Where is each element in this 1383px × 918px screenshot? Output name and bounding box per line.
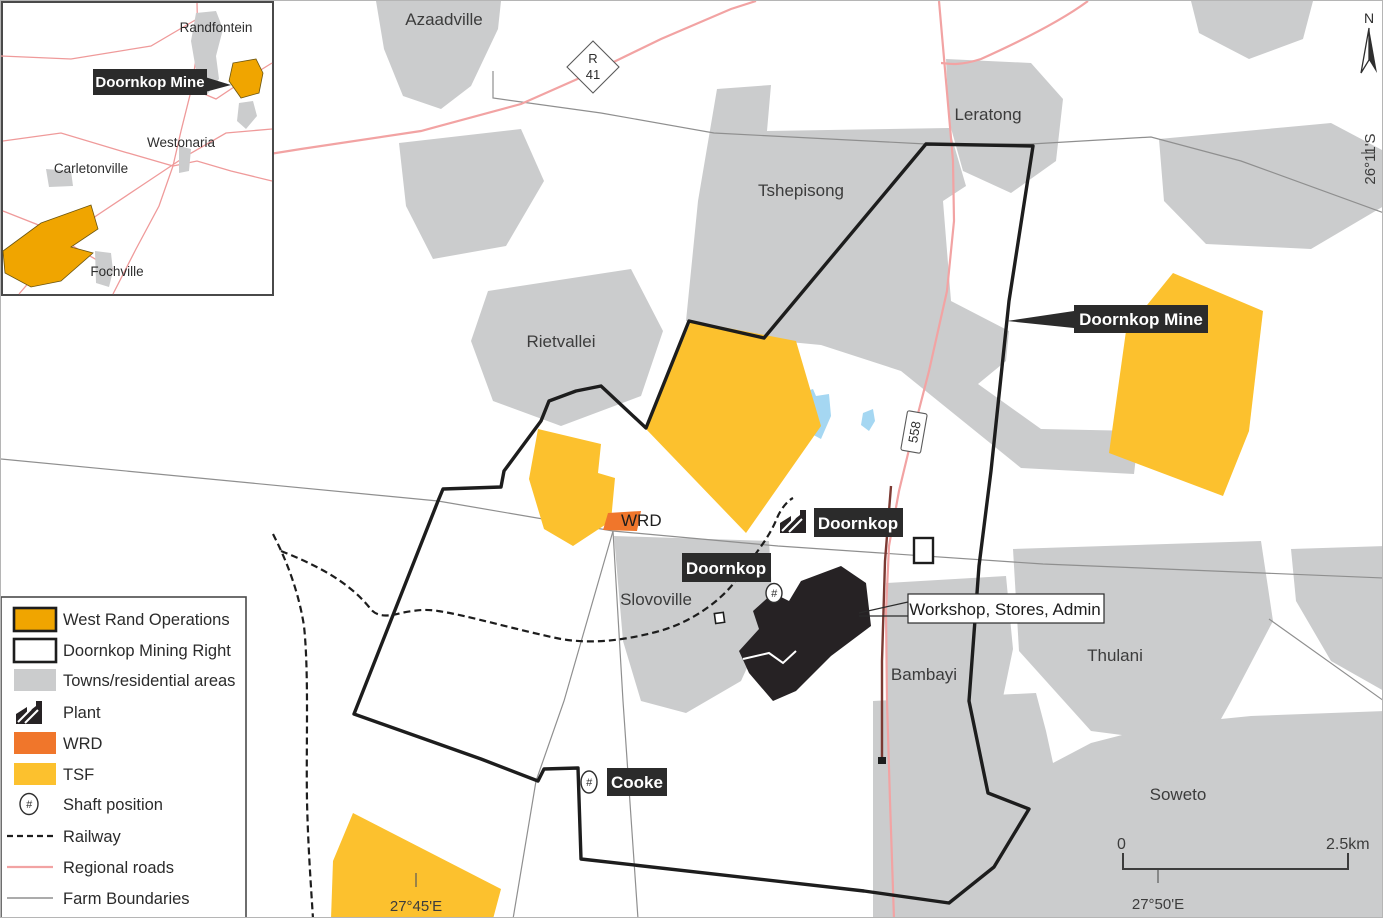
scale-start: 0: [1117, 836, 1126, 853]
shaft-position-doornkop: #: [766, 584, 782, 603]
svg-text:Regional roads: Regional roads: [63, 859, 174, 877]
town-leratong-area: [946, 59, 1063, 193]
svg-text:Cooke: Cooke: [611, 773, 663, 792]
svg-text:Farm Boundaries: Farm Boundaries: [63, 890, 190, 908]
lon-left-label: 27°45'E: [390, 898, 442, 915]
svg-text:Towns/residential areas: Towns/residential areas: [63, 672, 235, 690]
svg-text:West Rand Operations: West Rand Operations: [63, 611, 230, 629]
svg-text:#: #: [26, 799, 33, 811]
svg-text:Doornkop Mine: Doornkop Mine: [95, 74, 204, 91]
callout-doornkop-shaft: Doornkop: [682, 553, 771, 582]
road-badge-r41: R 41: [567, 41, 619, 93]
label-bambayi: Bambayi: [891, 665, 957, 684]
svg-text:Doornkop: Doornkop: [818, 514, 898, 533]
label-rietvallei: Rietvallei: [527, 332, 596, 351]
label-azaadville: Azaadville: [405, 10, 483, 29]
shaft-position-cooke: #: [581, 771, 597, 793]
inset-label-westonaria: Westonaria: [147, 135, 216, 150]
north-arrow: N: [1361, 10, 1377, 73]
lat-label: 26°11'S: [1362, 133, 1379, 184]
town-area: [1159, 123, 1383, 249]
building-outline: [914, 538, 933, 563]
legend-item-doornkop-mining-right: Doornkop Mining Right: [14, 639, 231, 662]
legend-item-towns-residential: Towns/residential areas: [14, 669, 235, 691]
rail-siding-cap: [878, 757, 886, 764]
inset-map: Randfontein Westonaria Carletonville Foc…: [1, 2, 273, 295]
svg-text:N: N: [1364, 10, 1374, 26]
plant-icon: [780, 510, 806, 533]
tsf-west: [529, 429, 615, 546]
callout-doornkop-mine: Doornkop Mine: [1007, 305, 1208, 333]
inset-label-randfontein: Randfontein: [180, 20, 253, 35]
svg-text:Plant: Plant: [63, 704, 101, 722]
callout-doornkop-plant: Doornkop: [814, 508, 903, 537]
lon-right-label: 27°50'E: [1132, 896, 1184, 913]
label-slovoville: Slovoville: [620, 590, 692, 609]
svg-text:Doornkop Mining Right: Doornkop Mining Right: [63, 642, 231, 660]
label-leratong: Leratong: [954, 105, 1021, 124]
svg-text:Railway: Railway: [63, 828, 122, 846]
map-canvas: Azaadville Tshepisong Leratong Rietvalle…: [1, 1, 1383, 918]
town-area: [1291, 546, 1383, 691]
callout-cooke: Cooke: [607, 768, 667, 796]
legend-item-tsf: TSF: [14, 763, 94, 785]
svg-text:#: #: [771, 588, 778, 600]
legend-item-west-rand-operations: West Rand Operations: [14, 608, 230, 631]
label-tshepisong: Tshepisong: [758, 181, 844, 200]
building-outline-small: [714, 612, 724, 623]
town-area: [399, 129, 544, 259]
svg-text:#: #: [586, 777, 593, 789]
svg-text:R: R: [588, 51, 597, 66]
scale-end: 2.5km: [1326, 836, 1370, 853]
road-curve: [941, 1, 1088, 64]
label-soweto: Soweto: [1150, 785, 1207, 804]
town-area: [1191, 1, 1313, 59]
svg-text:WRD: WRD: [63, 735, 102, 753]
label-thulani: Thulani: [1087, 646, 1143, 665]
locality-map: Azaadville Tshepisong Leratong Rietvalle…: [0, 0, 1383, 918]
legend: West Rand Operations Doornkop Mining Rig…: [1, 597, 246, 918]
label-wrd: WRD: [621, 511, 662, 530]
inset-label-fochville: Fochville: [90, 264, 143, 279]
svg-text:Doornkop Mine: Doornkop Mine: [1079, 310, 1203, 329]
svg-text:41: 41: [586, 67, 600, 82]
tsf-central: [646, 321, 821, 533]
svg-text:Doornkop: Doornkop: [686, 559, 766, 578]
road-badge-558: 558: [901, 411, 928, 454]
svg-text:Workshop, Stores, Admin: Workshop, Stores, Admin: [909, 600, 1101, 619]
svg-text:TSF: TSF: [63, 766, 94, 784]
svg-text:Shaft position: Shaft position: [63, 796, 163, 814]
inset-label-carletonville: Carletonville: [54, 161, 128, 176]
